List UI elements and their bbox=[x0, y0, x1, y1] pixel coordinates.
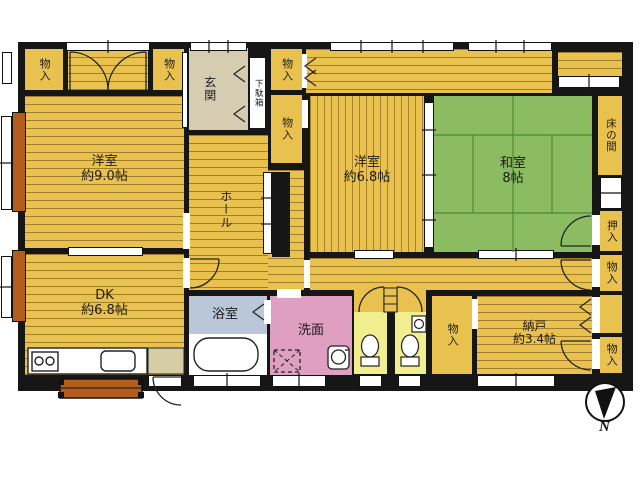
bay-window-2-sill bbox=[12, 250, 26, 322]
label-tokonoma: 床の間 bbox=[598, 100, 622, 171]
label-closet-entry-bottom: 物入 bbox=[271, 95, 302, 163]
window-bottom-bath bbox=[193, 375, 261, 387]
label-youshitsu68-name: 洋室 bbox=[354, 156, 380, 171]
label-getabako: 下駄箱 bbox=[249, 58, 266, 128]
label-hall: ホール bbox=[214, 175, 236, 243]
north-label: N bbox=[599, 419, 610, 436]
label-washitsu-name: 和室 bbox=[500, 157, 526, 172]
label-youshitsu9: 洋室 約9.0帖 bbox=[25, 140, 184, 200]
label-washitsu: 和室 8帖 bbox=[434, 144, 592, 200]
window-bottom-senmen bbox=[272, 375, 326, 387]
closet-right-2 bbox=[600, 295, 622, 333]
back-door-gap bbox=[148, 375, 182, 387]
window-left-small bbox=[2, 52, 12, 84]
door-youshitsu68-corridor bbox=[354, 250, 394, 259]
window-bottom-nando bbox=[477, 375, 555, 387]
entrance-door bbox=[190, 42, 247, 51]
label-senmen: 洗面 bbox=[272, 318, 350, 344]
label-closet-r3: 物入 bbox=[600, 337, 622, 373]
toilet-front-area bbox=[354, 290, 426, 312]
veranda-corner bbox=[556, 52, 622, 76]
label-youshitsu68-size: 約6.8帖 bbox=[344, 171, 391, 186]
door-closet-r3-gap bbox=[592, 339, 600, 369]
label-youshitsu9-size: 約9.0帖 bbox=[81, 170, 128, 185]
label-closet-tl-left: 物入 bbox=[25, 49, 63, 90]
label-closet-tl-right: 物入 bbox=[153, 49, 184, 90]
label-dk-size: 約6.8帖 bbox=[81, 304, 128, 319]
label-closet-entry-top: 物入 bbox=[271, 49, 302, 90]
window-top-3 bbox=[468, 42, 552, 51]
label-youshitsu9-name: 洋室 bbox=[91, 155, 117, 170]
bay-window-2-glass bbox=[1, 256, 12, 318]
window-bottom-toilet1 bbox=[359, 375, 382, 387]
closet-top-center bbox=[68, 49, 148, 90]
label-washitsu-size: 8帖 bbox=[502, 172, 523, 187]
door-youshitsu9-dk bbox=[68, 247, 143, 256]
label-closet-r1: 物入 bbox=[600, 255, 622, 291]
window-right bbox=[600, 177, 622, 209]
floor-plan: 物入 物入 物入 物入 物入 物入 物入 玄関 下駄箱 ホール 床の間 押入 洋… bbox=[0, 0, 640, 480]
label-oshiire: 押入 bbox=[600, 213, 622, 249]
door-dk-hall bbox=[183, 258, 190, 288]
window-top-2 bbox=[330, 42, 454, 51]
window-corner bbox=[558, 76, 620, 88]
door-yokushitsu-gap bbox=[264, 300, 271, 324]
hall-interior-wall bbox=[272, 172, 290, 257]
label-closet-center: 物入 bbox=[432, 296, 472, 374]
fusuma-sliding-doors bbox=[424, 102, 434, 248]
door-hall-corridor-gap bbox=[304, 260, 310, 288]
corridor-south bbox=[310, 258, 592, 290]
label-yokushitsu: 浴室 bbox=[189, 300, 261, 330]
label-nando-size: 約3.4帖 bbox=[513, 333, 556, 346]
bath-tub-area bbox=[189, 334, 267, 375]
label-dk-name: DK bbox=[95, 289, 114, 304]
door-youshitsu9-hall bbox=[183, 213, 190, 249]
hall-sliding-door bbox=[263, 172, 272, 254]
bay-window-1-glass bbox=[1, 116, 12, 210]
door-closet-entry-bottom-gap bbox=[302, 100, 308, 128]
door-oshiire-gap bbox=[592, 215, 600, 245]
door-washitsu-corridor bbox=[478, 250, 554, 259]
door-closet-r1-gap bbox=[592, 259, 600, 287]
label-dk: DK 約6.8帖 bbox=[25, 276, 184, 332]
label-nando-name: 納戸 bbox=[522, 320, 546, 333]
label-nando: 納戸 約3.4帖 bbox=[477, 305, 592, 361]
label-genkan: 玄関 bbox=[195, 55, 223, 123]
door-closet-r2-gap bbox=[592, 297, 600, 333]
door-closet-entry-top-gap bbox=[302, 54, 307, 88]
toilet-room-1 bbox=[354, 312, 387, 374]
window-top-1 bbox=[66, 42, 150, 51]
veranda-corridor bbox=[306, 49, 552, 93]
bay-window-1-sill bbox=[12, 112, 26, 212]
door-senmen-gap bbox=[277, 289, 301, 298]
window-bottom-toilet2 bbox=[398, 375, 421, 387]
toilet-room-2 bbox=[395, 312, 426, 374]
label-youshitsu68: 洋室 約6.8帖 bbox=[310, 142, 424, 200]
